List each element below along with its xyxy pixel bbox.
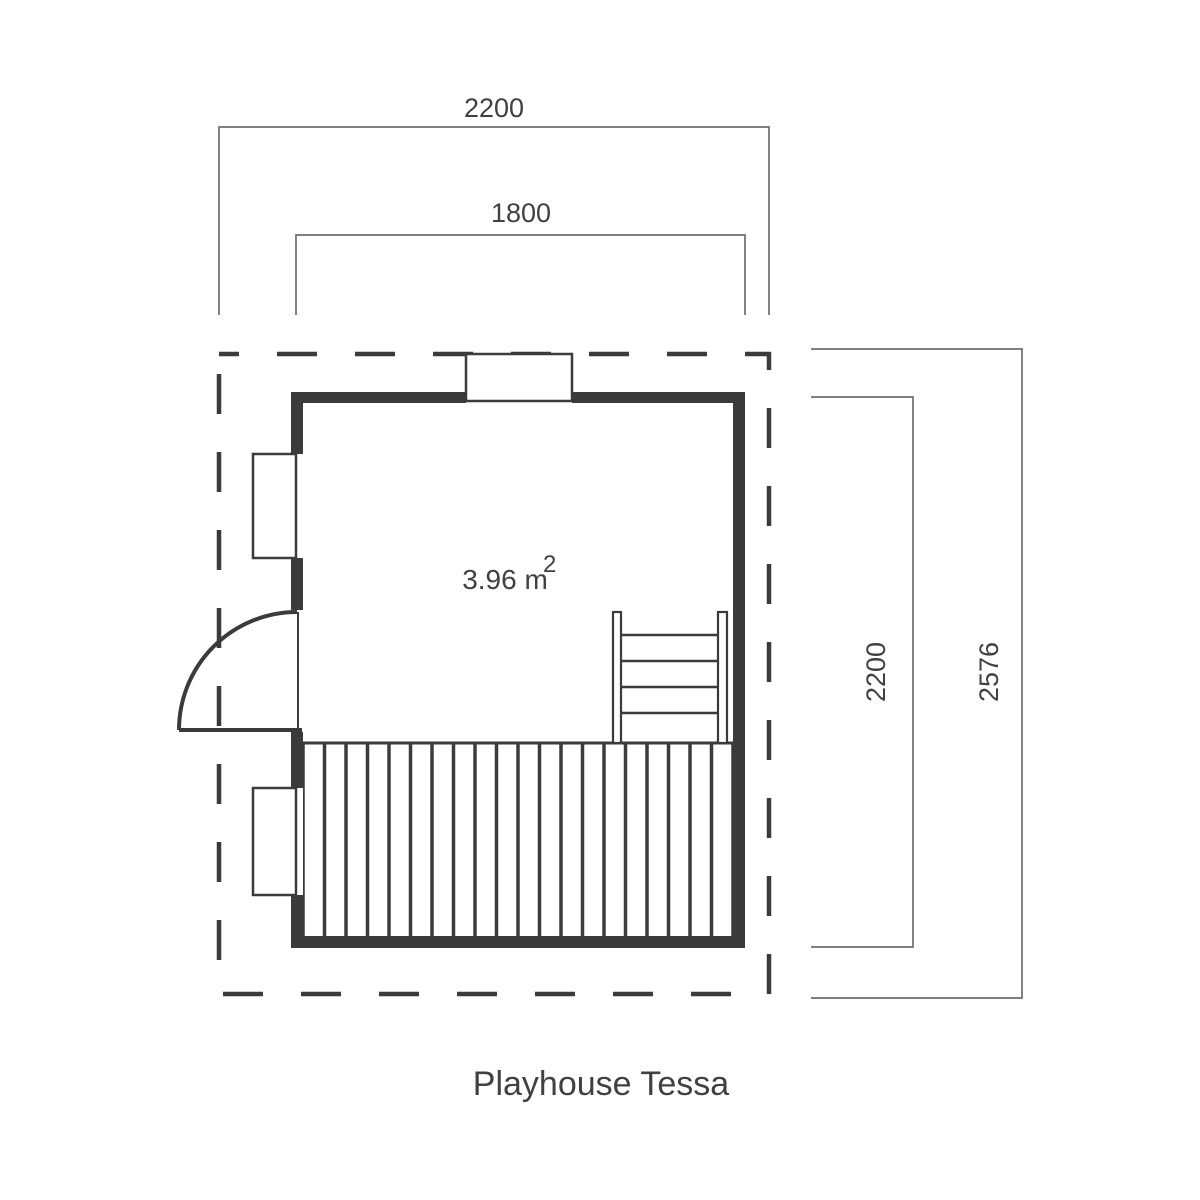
dim-label-wall-depth: 2200 xyxy=(861,642,891,702)
plan-title: Playhouse Tessa xyxy=(473,1065,730,1103)
dim-label-roof-width: 2200 xyxy=(464,93,524,123)
wall-left-segment-1 xyxy=(291,392,303,454)
wall-bottom xyxy=(291,936,745,948)
window-left-upper xyxy=(253,454,296,558)
dim-bracket-interior-width xyxy=(296,235,745,315)
wall-left-segment-3 xyxy=(291,732,303,788)
wall-right xyxy=(733,392,745,948)
dim-label-interior-width: 1800 xyxy=(491,198,551,228)
door-swing-arc xyxy=(179,612,297,730)
ladder xyxy=(613,612,727,743)
area-label: 3.96 m xyxy=(462,564,548,595)
ladder-rail-right xyxy=(718,612,727,743)
floor-plan-canvas: 2200 1800 2200 2576 3.96 m 2 Playhouse T… xyxy=(0,0,1200,1200)
area-label-superscript: 2 xyxy=(543,551,556,578)
wall-top-left-segment xyxy=(291,392,466,403)
floor-plan-drawing: 2200 1800 2200 2576 3.96 m 2 Playhouse T… xyxy=(0,0,1200,1200)
wall-top-right-segment xyxy=(572,392,745,403)
window-left-lower xyxy=(253,788,296,895)
wall-left-segment-2 xyxy=(291,558,303,610)
deck-planks xyxy=(303,744,733,936)
dim-label-roof-depth: 2576 xyxy=(974,642,1004,702)
dimension-line-interior-width xyxy=(296,235,745,315)
terrace-deck xyxy=(303,743,733,936)
window-top xyxy=(466,354,572,401)
ladder-rail-left xyxy=(613,612,621,743)
entrance-door xyxy=(179,612,302,730)
